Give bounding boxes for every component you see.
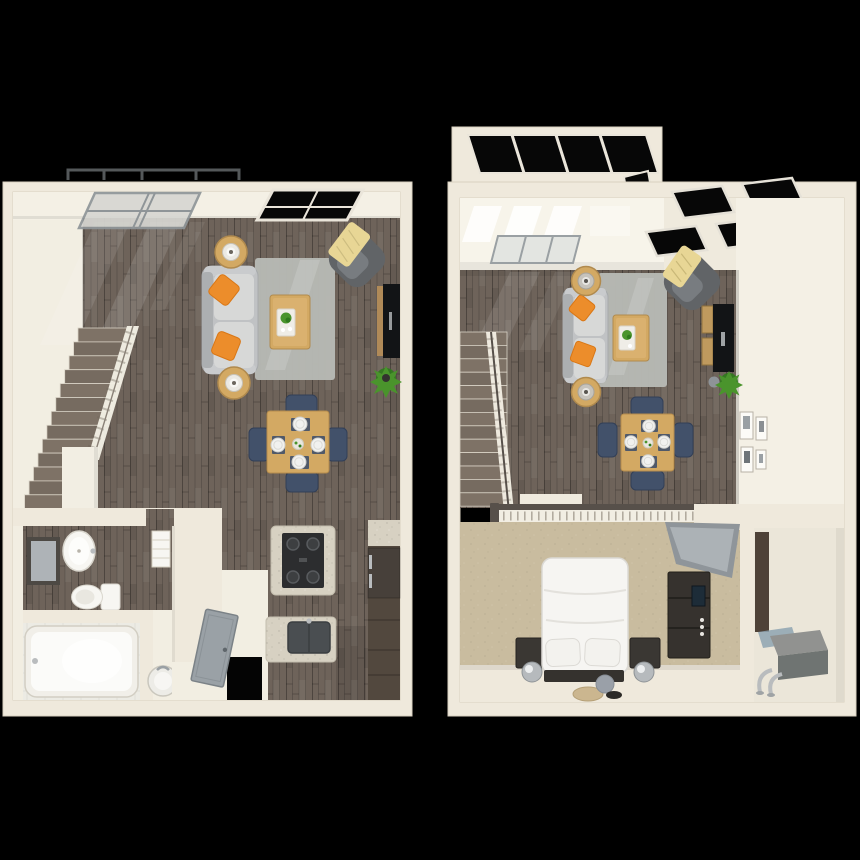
- floor-shading: [336, 626, 366, 700]
- base-cabinets: [368, 520, 400, 700]
- dresser: [668, 572, 710, 658]
- floorplan-lower-level: lower-level-floorplan: [3, 170, 412, 716]
- side-table-with-lamp: [215, 236, 247, 268]
- clerestory-window: [491, 236, 580, 263]
- sofa: [202, 266, 258, 374]
- dining-chair: [249, 428, 269, 461]
- dresser-tv: [692, 586, 705, 606]
- tv-and-media-cubes: [702, 304, 734, 372]
- dark-glass-window: [257, 190, 363, 220]
- sphere-lamp: [634, 662, 654, 682]
- centerpiece: [293, 439, 304, 450]
- floorplan-rendering: lower-level-floorplan: [0, 0, 860, 860]
- bathroom-wall: [13, 508, 222, 526]
- handrail: [492, 504, 704, 510]
- light-glass-window: [79, 193, 200, 228]
- towel-shelf: [152, 531, 170, 567]
- sofa: [563, 288, 608, 383]
- bathroom-doorway: [146, 509, 174, 526]
- side-table-with-lamp: [572, 267, 601, 296]
- coffee-table: [613, 315, 649, 361]
- utility-closet: [740, 522, 844, 702]
- media-shelf: [377, 286, 383, 356]
- wall-mirror: [27, 537, 60, 585]
- newel-post: [490, 503, 499, 523]
- skylight-pane: [646, 226, 707, 256]
- dining-chair: [674, 423, 693, 457]
- closet-wall: [740, 522, 754, 702]
- bed-pillow: [545, 638, 580, 667]
- landing: [520, 494, 582, 505]
- duct-chase: [755, 532, 769, 632]
- dining-chair: [631, 397, 663, 416]
- gas-range-counter: [271, 526, 335, 595]
- tub-faucet: [32, 658, 38, 664]
- dining-chair: [598, 423, 617, 457]
- pedestal-sink: [63, 531, 96, 571]
- tv-and-media-shelf: [377, 284, 400, 358]
- sink-faucet: [306, 618, 311, 623]
- floorplan-scene: lower-level-floorplan: [0, 0, 860, 860]
- tub-divider-wall: [23, 610, 153, 623]
- side-table-with-lamp: [572, 378, 601, 407]
- round-pouf: [606, 691, 622, 699]
- refrigerator: [368, 548, 400, 598]
- skylight-pane: [672, 186, 734, 218]
- toilet: [72, 584, 121, 610]
- bay-window-frame: [68, 170, 239, 180]
- floor-plant: [370, 366, 402, 398]
- faucet: [90, 548, 95, 553]
- wall-shadow: [172, 526, 175, 662]
- granite-counter: [368, 520, 400, 546]
- sphere-lamp: [522, 662, 542, 682]
- floorplan-upper-level: upper-level-loft-floorplan: [448, 127, 856, 716]
- peninsula-counter: [266, 617, 336, 662]
- bed-pillow: [584, 638, 620, 667]
- round-pouf: [596, 675, 614, 693]
- entry-doorway-opening: [227, 657, 262, 700]
- dining-chair: [286, 472, 318, 492]
- side-table-with-lamp: [218, 367, 250, 399]
- dining-chair: [327, 428, 347, 461]
- dining-chair: [631, 471, 664, 490]
- tabletop-plant: [281, 313, 292, 324]
- media-cube: [702, 306, 713, 333]
- bathtub: [25, 626, 138, 697]
- media-cube: [702, 338, 713, 365]
- centerpiece: [643, 438, 653, 448]
- coffee-table: [270, 295, 310, 349]
